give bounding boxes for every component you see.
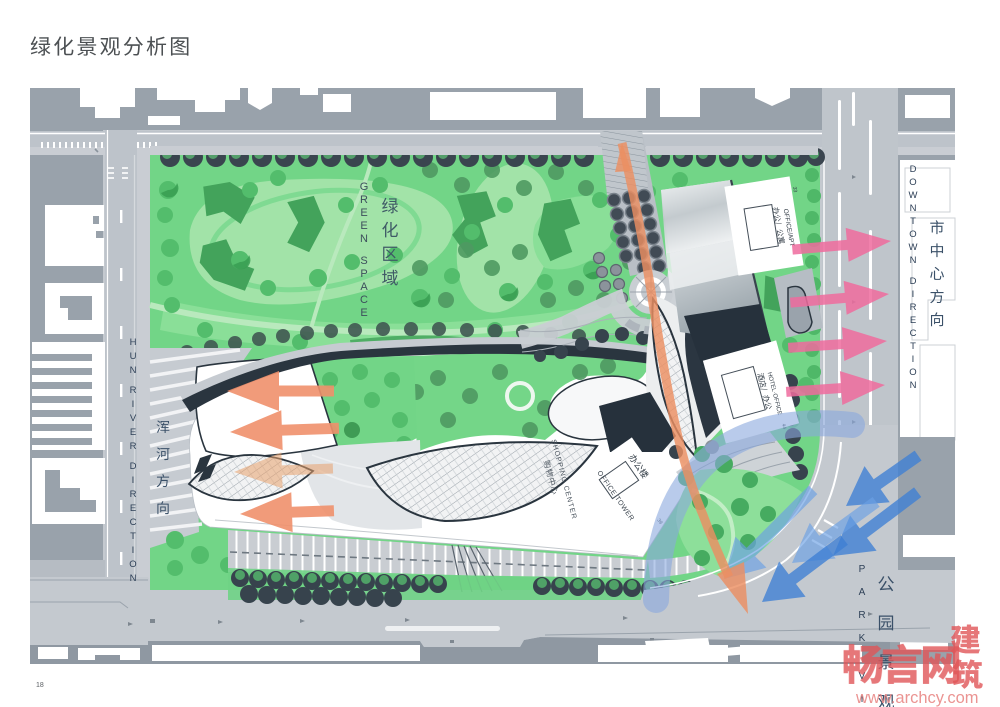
svg-text:R: R: [858, 610, 865, 621]
svg-text:C: C: [360, 294, 368, 306]
svg-text:G: G: [360, 181, 369, 193]
svg-text:R: R: [130, 489, 137, 500]
svg-text:N: N: [910, 203, 917, 214]
svg-text:E: E: [130, 503, 136, 514]
svg-text:I: I: [912, 354, 915, 365]
svg-text:O: O: [129, 559, 136, 570]
svg-text:D: D: [130, 461, 137, 472]
svg-text:18: 18: [36, 682, 44, 689]
svg-text:W: W: [909, 242, 918, 253]
svg-text:N: N: [360, 233, 368, 245]
svg-text:E: E: [360, 207, 367, 219]
svg-text:W: W: [909, 190, 918, 201]
svg-text:R: R: [130, 385, 137, 396]
svg-text:P: P: [859, 564, 866, 575]
svg-text:E: E: [130, 427, 136, 438]
svg-text:H: H: [130, 337, 137, 348]
svg-text:D: D: [910, 164, 917, 175]
svg-text:A: A: [360, 281, 368, 293]
svg-text:A: A: [859, 587, 866, 598]
svg-text:O: O: [909, 177, 916, 188]
svg-text:T: T: [910, 216, 916, 227]
svg-text:R: R: [910, 302, 917, 313]
svg-text:N: N: [910, 380, 917, 391]
svg-text:O: O: [909, 229, 916, 240]
svg-text:E: E: [360, 220, 367, 232]
svg-text:C: C: [910, 328, 917, 339]
svg-text:O: O: [909, 367, 916, 378]
svg-text:N: N: [130, 573, 137, 584]
svg-text:www.archcy.com: www.archcy.com: [855, 689, 979, 707]
svg-text:T: T: [910, 341, 916, 352]
svg-text:E: E: [910, 315, 916, 326]
svg-text:I: I: [912, 289, 915, 300]
svg-text:R: R: [130, 441, 137, 452]
svg-text:I: I: [132, 399, 135, 410]
svg-text:I: I: [132, 545, 135, 556]
svg-text:E: E: [360, 307, 367, 319]
svg-text:R: R: [360, 194, 368, 206]
svg-text:V: V: [130, 413, 137, 424]
svg-text:S: S: [360, 255, 367, 267]
svg-text:N: N: [130, 365, 137, 376]
svg-text:T: T: [130, 531, 136, 542]
svg-text:N: N: [910, 255, 917, 266]
svg-text:I: I: [132, 475, 135, 486]
svg-text:P: P: [360, 268, 367, 280]
svg-text:K: K: [859, 633, 866, 644]
svg-text:C: C: [130, 517, 137, 528]
svg-text:U: U: [130, 351, 137, 362]
svg-text:D: D: [910, 276, 917, 287]
